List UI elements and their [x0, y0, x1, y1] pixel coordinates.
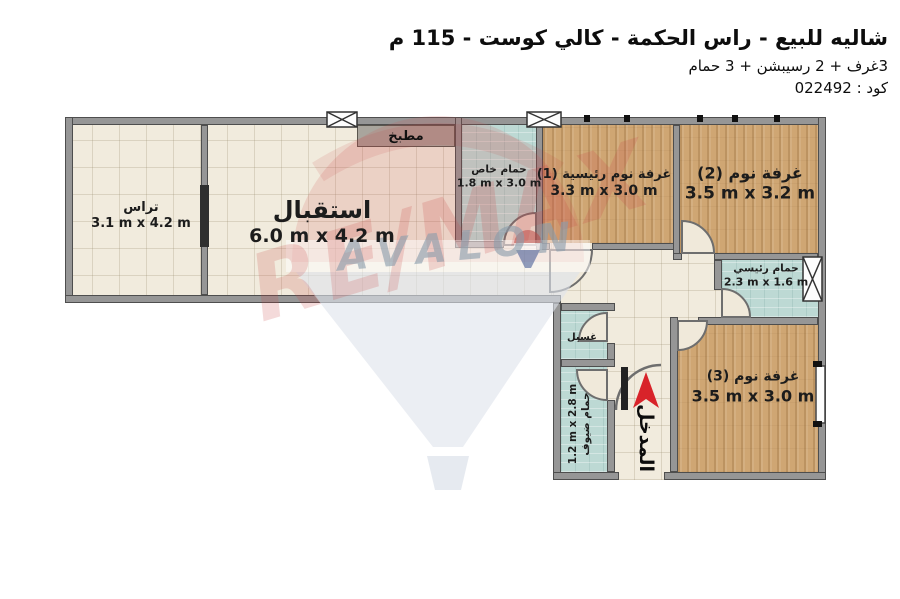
wall-segment	[561, 359, 615, 367]
wall-segment	[673, 125, 680, 260]
label-laundry: غسيل	[567, 332, 597, 345]
wall-segment	[561, 303, 615, 311]
label-kitchen: مطبخ	[388, 129, 423, 145]
wall-segment	[698, 317, 818, 325]
wall-segment	[65, 117, 73, 303]
label-master-bedroom: غرفة نوم رئيسية (1) 3.3 m x 3.0 m	[537, 167, 672, 201]
wall-segment	[65, 295, 561, 303]
wall-segment	[664, 472, 826, 480]
label-guest-bath: 1.2 m x 2.8 m حمام ضيوف	[567, 384, 593, 464]
wall-segment	[553, 472, 619, 480]
wall-segment	[65, 117, 826, 125]
listing-summary: 3غرف + 2 رسيبشن + 3 حمام	[688, 57, 888, 75]
label-entrance: المدخل	[633, 404, 657, 472]
wall-segment	[607, 400, 615, 472]
terrace-door	[200, 185, 209, 247]
wall-segment	[553, 303, 561, 480]
label-reception: استقبال 6.0 m x 4.2 m	[249, 195, 395, 249]
label-bedroom2: غرفة نوم (2) 3.5 m x 3.2 m	[685, 163, 815, 204]
wall-segment	[714, 253, 818, 260]
listing-title: شاليه للبيع - راس الحكمة - كالي كوست - 1…	[389, 26, 888, 50]
wall-segment	[670, 317, 678, 472]
label-master-bath: حمام رئيسي 2.3 m x 1.6 m	[724, 263, 808, 290]
label-private-bath: حمام خاص 1.8 m x 3.0 m	[457, 164, 541, 191]
wall-segment	[818, 117, 826, 480]
wall-segment	[592, 243, 680, 250]
wall-segment	[673, 253, 682, 260]
label-terrace: تراس 3.1 m x 4.2 m	[91, 200, 191, 233]
wall-segment	[455, 241, 504, 248]
floor-plan-page: شاليه للبيع - راس الحكمة - كالي كوست - 1…	[0, 0, 900, 599]
wall-segment	[714, 260, 722, 290]
label-bedroom3: غرفة نوم (3) 3.5 m x 3.0 m	[692, 368, 815, 406]
wall-segment	[536, 243, 550, 250]
listing-code: كود : 022492	[795, 79, 888, 97]
